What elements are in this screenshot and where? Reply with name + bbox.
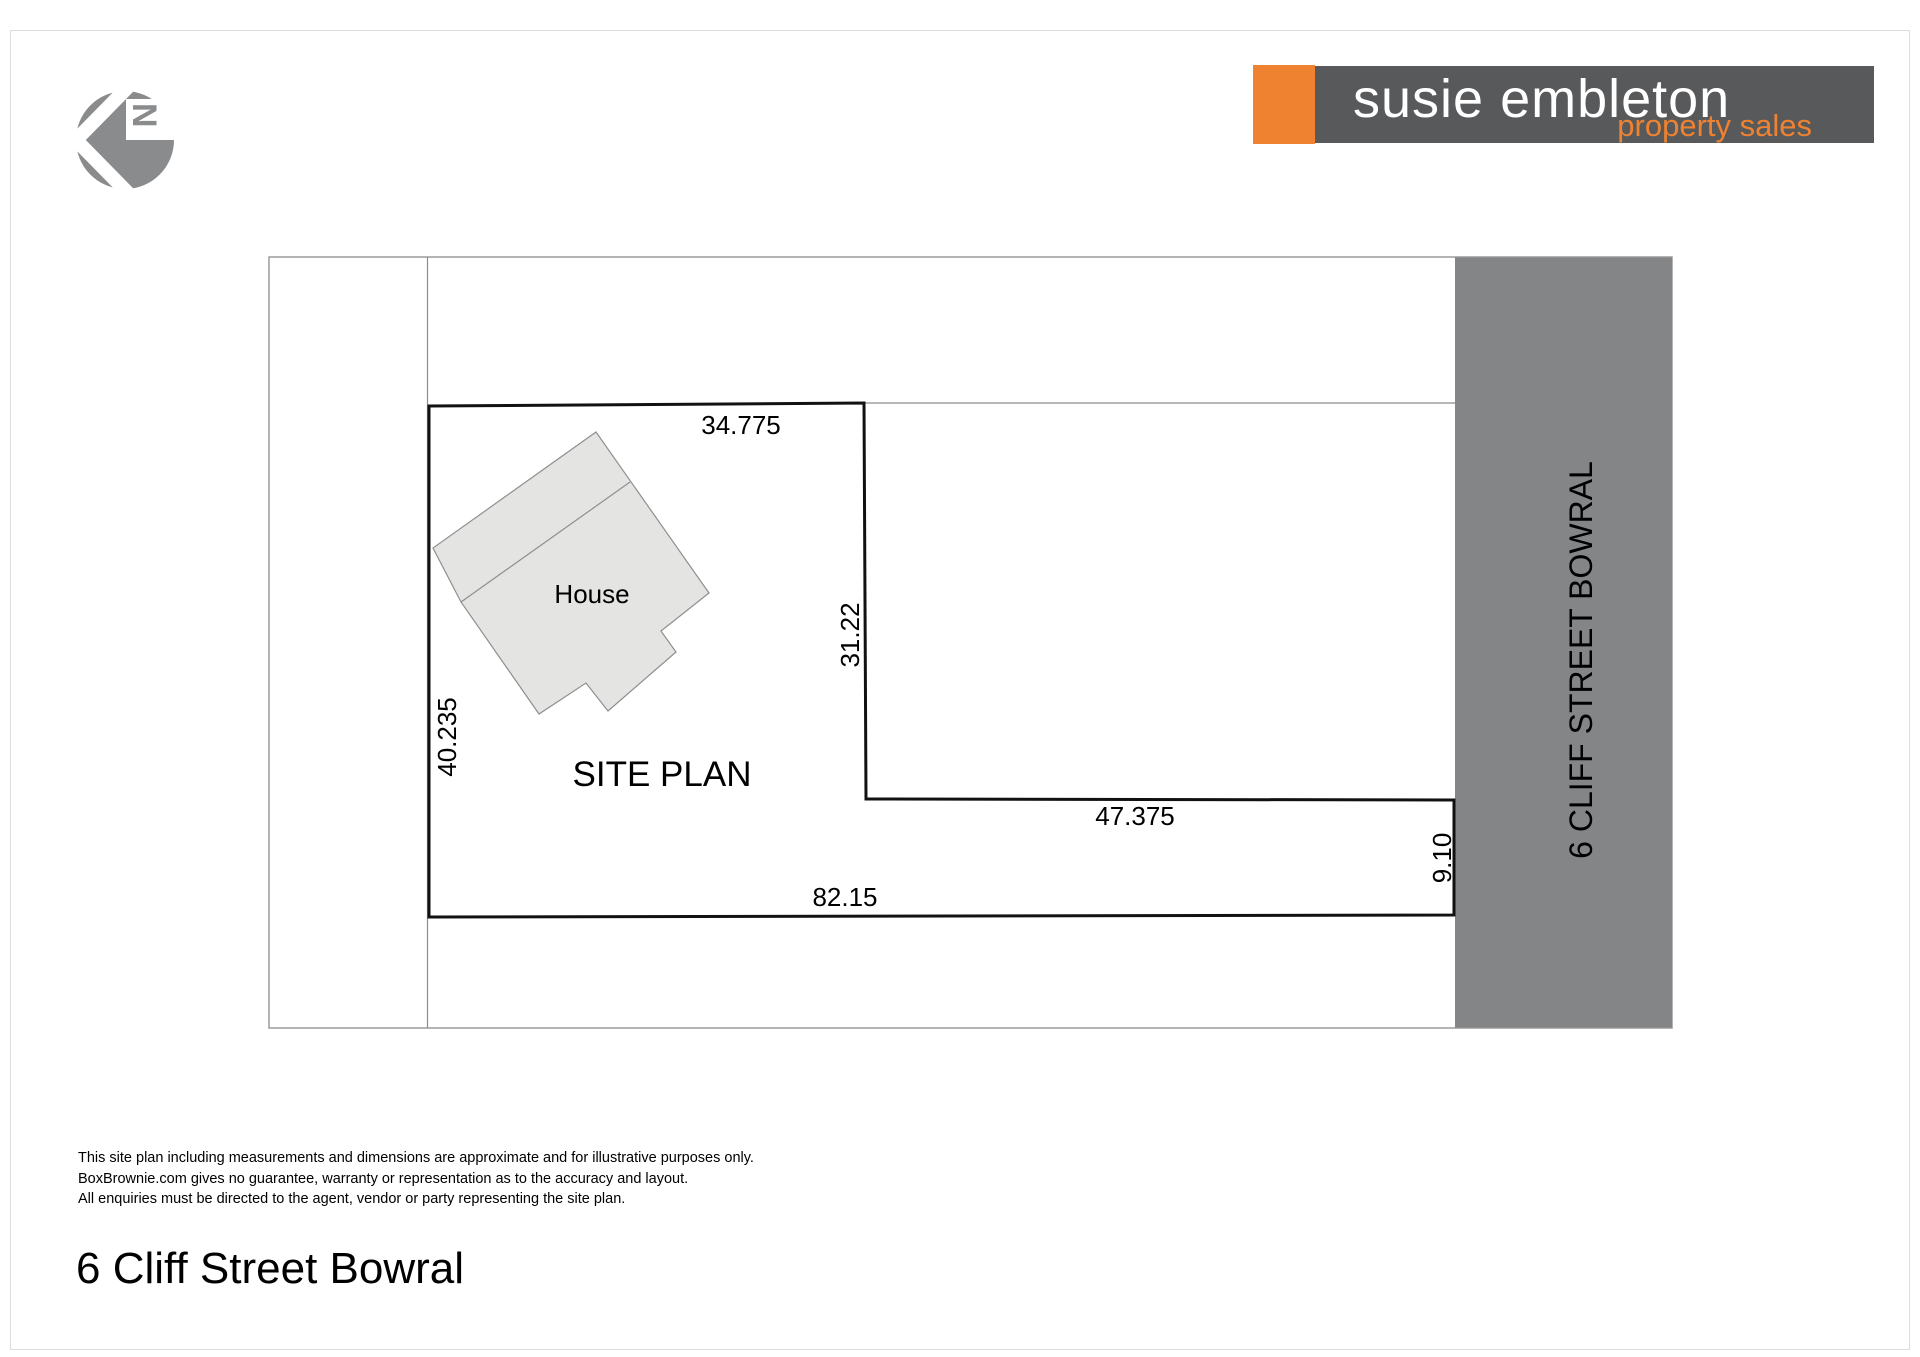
brand-accent-square: [1253, 65, 1315, 144]
site-plan-label: SITE PLAN: [573, 755, 752, 794]
disclaimer-line-3: All enquiries must be directed to the ag…: [78, 1189, 754, 1210]
disclaimer-line-1: This site plan including measurements an…: [78, 1148, 754, 1169]
brand-tagline: property sales: [1617, 110, 1812, 141]
dimension-right-lower: 9.10: [1427, 833, 1457, 884]
north-arrow-icon: N: [60, 75, 190, 205]
street-label: 6 CLIFF STREET BOWRAL: [1563, 461, 1599, 859]
brand-bar: susie embleton property sales: [1315, 66, 1874, 143]
brand-banner: susie embleton property sales: [1253, 66, 1874, 143]
site-plan-flyer: N susie embleton property sales 34.775 3…: [0, 0, 1920, 1357]
dimension-bottom: 82.15: [812, 882, 877, 912]
dimension-top: 34.775: [701, 410, 781, 440]
dimension-left: 40.235: [432, 697, 462, 777]
north-letter: N: [125, 103, 163, 128]
site-plan-drawing: 34.775 31.22 47.375 9.10 82.15 40.235 Ho…: [260, 250, 1680, 1040]
house-footprint: [433, 432, 709, 714]
disclaimer-line-2: BoxBrownie.com gives no guarantee, warra…: [78, 1169, 754, 1190]
disclaimer: This site plan including measurements an…: [78, 1148, 754, 1210]
property-title: 6 Cliff Street Bowral: [76, 1247, 464, 1291]
house-label: House: [554, 579, 629, 609]
dimension-right-upper: 31.22: [835, 602, 865, 667]
dimension-step: 47.375: [1095, 801, 1175, 831]
